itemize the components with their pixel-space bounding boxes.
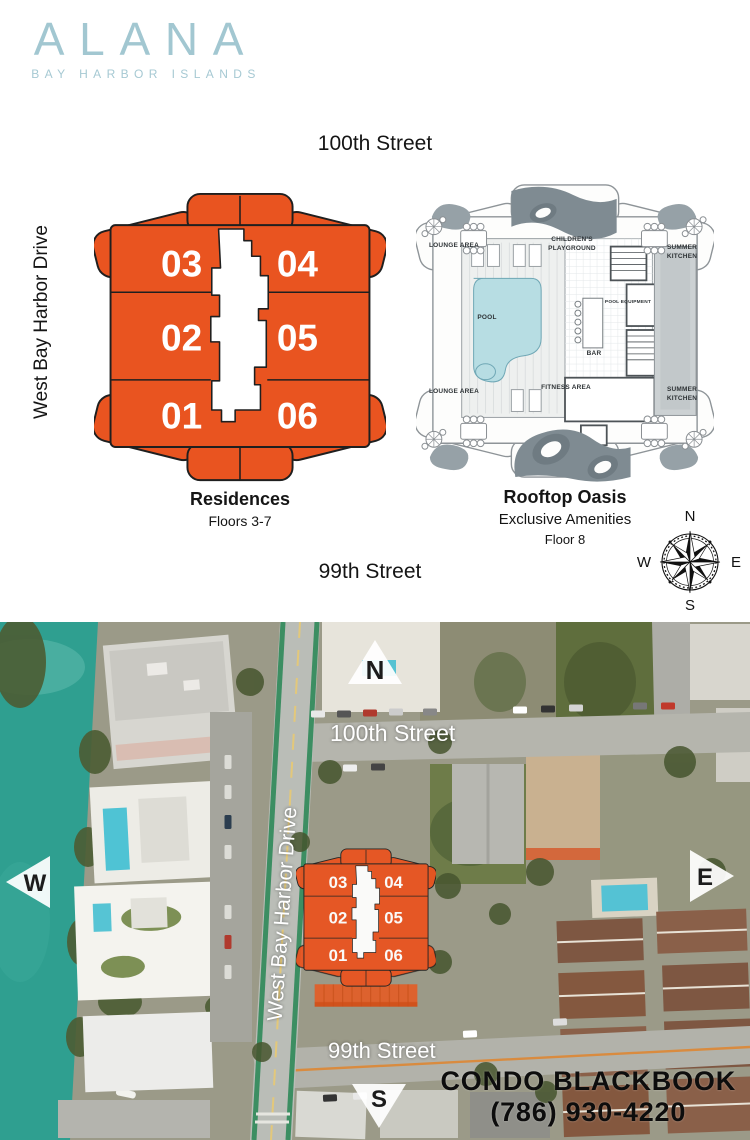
residences-floors: Floors 3-7	[94, 513, 386, 531]
rooftop-floor-plan: LOUNGE AREA CHILDREN'S PLAYGROUND SUMMER…	[416, 182, 714, 482]
svg-text:W: W	[24, 870, 47, 897]
street-label-99th: 99th Street	[0, 560, 740, 584]
compass-star	[660, 531, 720, 593]
brand-name: ALANA	[26, 14, 266, 65]
label-fitness-area: FITNESS AREA	[530, 384, 602, 393]
unit-label-05: 05	[277, 318, 318, 359]
rooftop-plan-graphic	[416, 182, 714, 482]
brand-logo: ALANA BAY HARBOR ISLANDS	[26, 14, 266, 81]
flyer-page: ALANA BAY HARBOR ISLANDS 100th Street We…	[0, 0, 750, 1140]
map-label-99th-street: 99th Street	[328, 1038, 436, 1064]
unit-label-06: 06	[277, 396, 318, 437]
map-marker-north: N	[346, 638, 404, 686]
residences-floor-plan: 03 04 02 05 01 06	[94, 192, 386, 484]
svg-text:E: E	[697, 864, 713, 891]
unit-label-02: 02	[161, 318, 202, 359]
unit-label-01: 01	[161, 396, 202, 437]
label-pool: POOL	[462, 314, 512, 323]
overlay-plan-outline	[296, 849, 436, 986]
overlay-unit-06: 06	[384, 946, 403, 965]
unit-label-04: 04	[277, 244, 319, 285]
brand-tagline: BAY HARBOR ISLANDS	[26, 67, 266, 81]
compass-n: N	[685, 508, 696, 525]
svg-text:S: S	[371, 1086, 387, 1113]
label-summer-kitchen-top: SUMMER KITCHEN	[654, 244, 710, 262]
overlay-unit-03: 03	[329, 873, 348, 892]
residences-title: Residences	[94, 488, 386, 511]
aerial-map: 03 04 02 05 01 06 100th Street 99th Stre…	[0, 622, 750, 1140]
label-lounge-area-top: LOUNGE AREA	[428, 242, 480, 251]
highlighted-building-overlay: 03 04 02 05 01 06	[296, 848, 436, 1009]
map-marker-west: W	[4, 854, 52, 910]
svg-text:N: N	[366, 655, 385, 685]
compass-e: E	[731, 554, 741, 571]
bar-island	[583, 298, 603, 348]
building-facade	[315, 984, 418, 1006]
unit-label-03: 03	[161, 244, 202, 285]
label-summer-kitchen-bottom: SUMMER KITCHEN	[654, 386, 710, 404]
label-lounge-area-bottom: LOUNGE AREA	[428, 388, 480, 397]
map-marker-east: E	[688, 848, 736, 904]
label-pool-equipment: POOL EQUIPMENT	[604, 300, 652, 306]
compass-s: S	[685, 597, 695, 614]
advertiser-block: CONDO BLACKBOOK (786) 930-4220	[441, 1066, 737, 1128]
overlay-unit-05: 05	[384, 909, 403, 928]
amenity-zone	[565, 239, 666, 446]
spa-shape	[476, 364, 496, 380]
overlay-unit-04: 04	[384, 873, 403, 892]
street-label-west-bay-harbor: West Bay Harbor Drive	[31, 225, 53, 419]
residences-caption: Residences Floors 3-7	[94, 488, 386, 530]
compass-w: W	[637, 554, 652, 571]
map-marker-south: S	[350, 1082, 408, 1130]
compass-rose: N E S W	[634, 505, 746, 617]
overlay-unit-02: 02	[329, 909, 348, 928]
label-childrens-playground: CHILDREN'S PLAYGROUND	[536, 236, 608, 254]
residences-plan-outline	[94, 194, 386, 480]
label-bar: BAR	[574, 350, 614, 359]
advertiser-phone: (786) 930-4220	[441, 1097, 737, 1128]
map-label-100th-street: 100th Street	[330, 720, 455, 747]
advertiser-name: CONDO BLACKBOOK	[441, 1066, 737, 1097]
overlay-unit-01: 01	[329, 946, 348, 965]
street-label-100th: 100th Street	[0, 132, 750, 156]
